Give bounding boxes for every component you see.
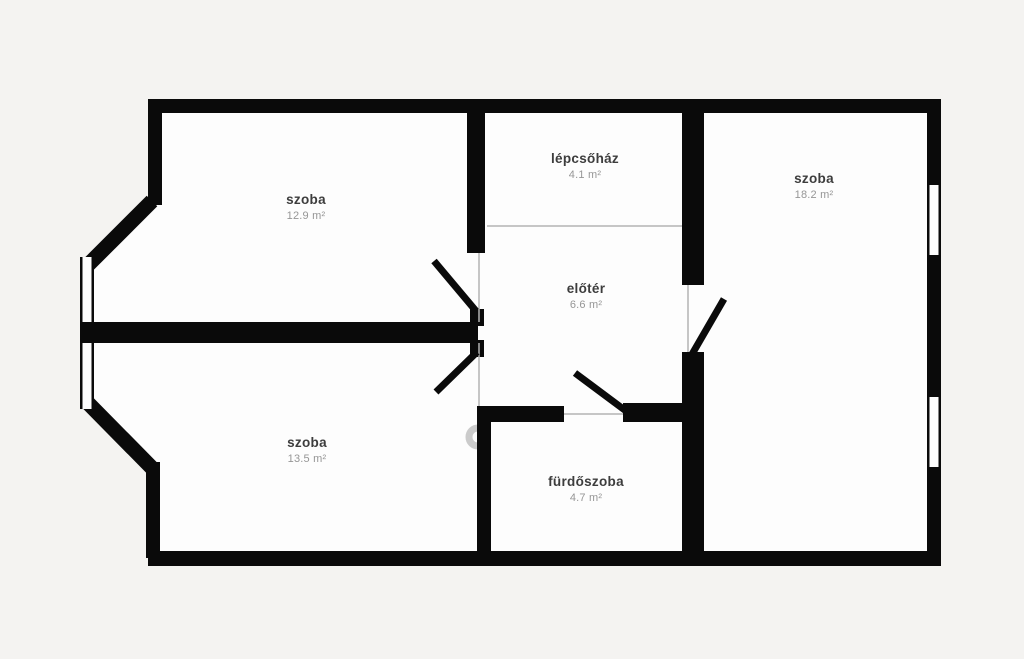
room-label-right: szoba 18.2 m²	[794, 170, 834, 203]
room-label-bottom-left: szoba 13.5 m²	[287, 434, 327, 467]
wall-left-lower	[146, 462, 160, 558]
wall-right-lower	[927, 467, 941, 559]
room-label-bathroom: fürdőszoba 4.7 m²	[548, 473, 624, 506]
room-label-top-left: szoba 12.9 m²	[286, 191, 326, 224]
room-name: szoba	[794, 170, 834, 188]
room-area: 6.6 m²	[567, 298, 606, 313]
window-right-lower-line-b	[939, 397, 942, 467]
wall-right-upper	[927, 110, 941, 185]
room-label-foyer: előtér 6.6 m²	[567, 280, 606, 313]
window-right-upper-line-b	[939, 185, 942, 255]
wall-right-middle	[927, 255, 941, 397]
wall-mid-horizontal	[80, 322, 478, 343]
window-left-wall-cross	[80, 322, 94, 343]
wall-right-room-upper	[682, 110, 704, 285]
wall-right-room-lower	[682, 352, 704, 554]
wall-bathroom-top-a	[477, 406, 564, 422]
room-name: lépcsőház	[551, 150, 619, 168]
room-name: előtér	[567, 280, 606, 298]
floor-plan-canvas: szoba 12.9 m² lépcsőház 4.1 m² szoba 18.…	[0, 0, 1024, 659]
wall-top	[148, 99, 941, 113]
room-area: 18.2 m²	[794, 188, 834, 203]
room-name: szoba	[287, 434, 327, 452]
wall-bathroom-top-b	[623, 403, 684, 422]
room-name: fürdőszoba	[548, 473, 624, 491]
room-area: 4.1 m²	[551, 168, 619, 183]
wall-staircase-left	[467, 110, 485, 253]
window-right-lower-line-a	[927, 397, 930, 467]
floor-plan-drawing	[0, 0, 1024, 659]
window-right-upper-line-a	[927, 185, 930, 255]
room-label-staircase: lépcsőház 4.1 m²	[551, 150, 619, 183]
wall-bathroom-left	[477, 406, 491, 552]
wall-left-upper	[148, 99, 162, 205]
room-area: 4.7 m²	[548, 491, 624, 506]
room-area: 12.9 m²	[286, 209, 326, 224]
wall-bottom	[148, 551, 941, 566]
room-name: szoba	[286, 191, 326, 209]
room-area: 13.5 m²	[287, 452, 327, 467]
